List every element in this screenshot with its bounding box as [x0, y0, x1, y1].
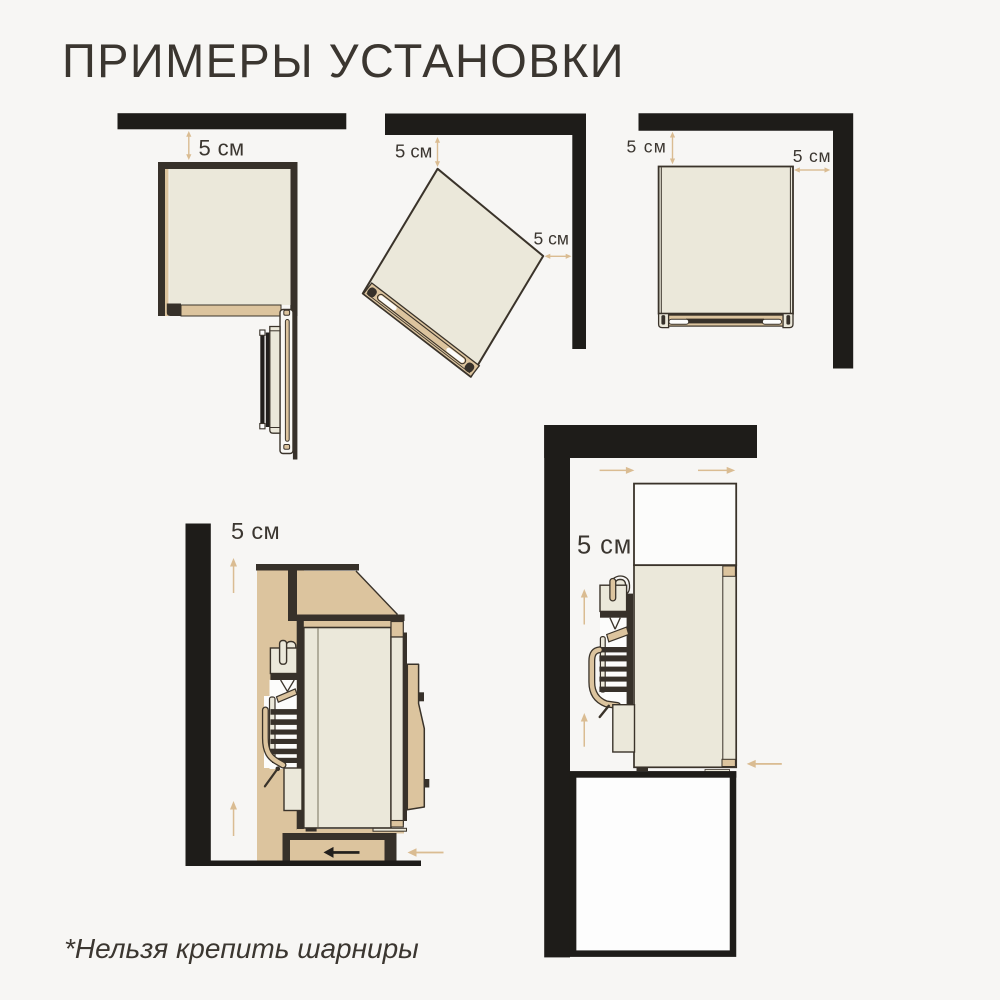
svg-text:5 см: 5 см — [627, 137, 668, 157]
svg-text:ПРИМЕРЫ УСТАНОВКИ: ПРИМЕРЫ УСТАНОВКИ — [62, 34, 625, 87]
svg-text:5 см: 5 см — [577, 532, 632, 560]
svg-text:5 см: 5 см — [534, 229, 569, 249]
svg-text:5 см: 5 см — [231, 518, 280, 544]
svg-text:*Нельзя крепить шарниры: *Нельзя крепить шарниры — [64, 933, 419, 964]
svg-text:5 см: 5 см — [793, 146, 832, 166]
svg-text:5 см: 5 см — [395, 141, 432, 162]
svg-text:5 см: 5 см — [199, 135, 245, 160]
